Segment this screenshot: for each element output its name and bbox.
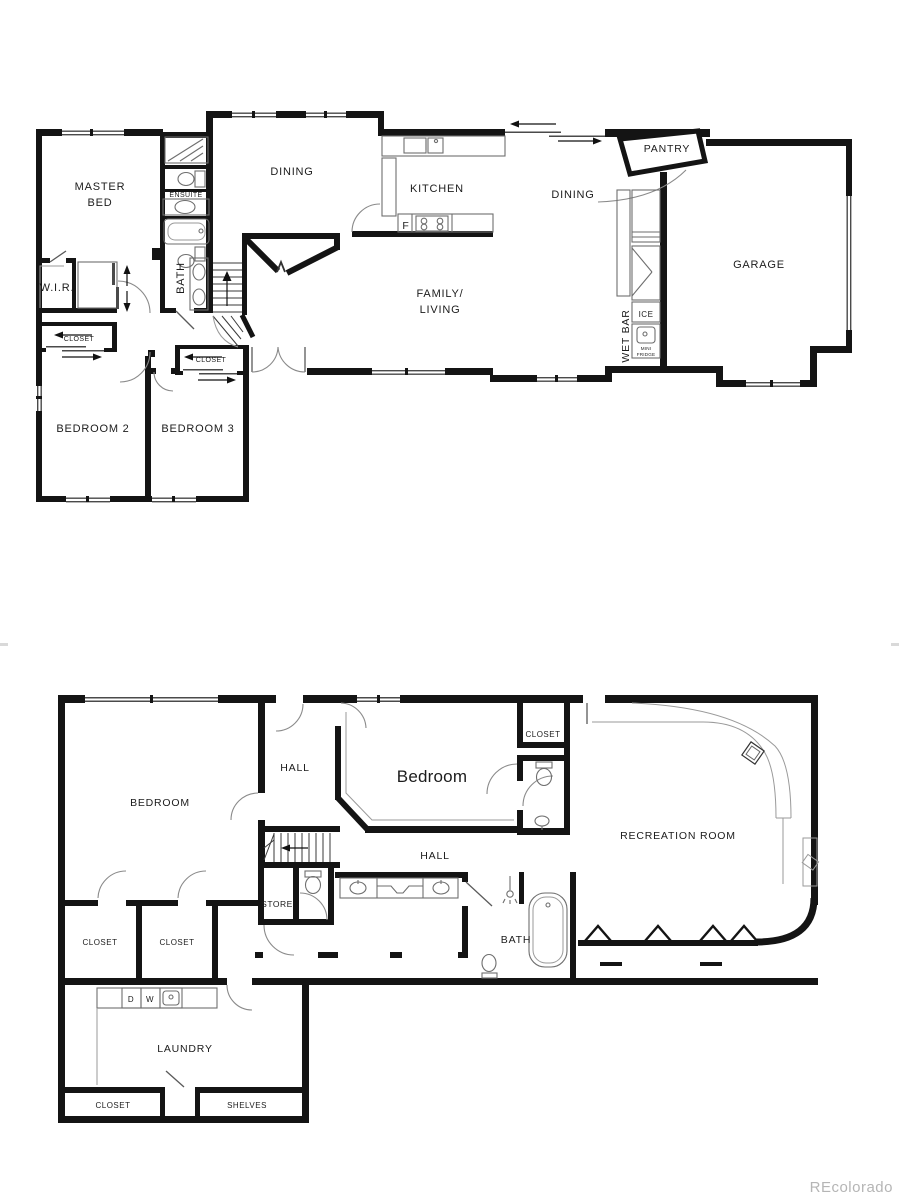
label-mini-fridge-1: MINI [641, 346, 652, 351]
room-label-family-2: LIVING [420, 304, 461, 316]
kitchen-sink-icon [382, 136, 505, 156]
room-label-bedroom-left: BEDROOM [130, 797, 190, 809]
room-label-closet2: CLOSET [159, 938, 194, 947]
room-label-wet-bar: WET BAR [620, 309, 632, 362]
shower-head-icon [503, 876, 517, 904]
toilet-icon [305, 871, 321, 894]
room-label-laundry: LAUNDRY [157, 1043, 213, 1055]
room-label-family-1: FAMILY/ [417, 288, 464, 300]
basin-icon [535, 816, 549, 830]
wardrobe-sliding [78, 262, 131, 312]
toilet-icon [482, 955, 497, 979]
front-door-chevron [277, 262, 285, 272]
closet2-door-arc [178, 871, 206, 898]
vanity-double-sink [340, 878, 458, 898]
stove-icon [398, 214, 493, 232]
room-label-dining-right: DINING [551, 189, 594, 201]
wir-door-leaf [50, 251, 66, 262]
room-label-kitchen: KITCHEN [410, 183, 464, 195]
watermark: REcolorado [810, 1179, 893, 1196]
room-label-closet1: CLOSET [82, 938, 117, 947]
pantry-door-arc [598, 170, 686, 202]
room-label-bath-lower: BATH [501, 934, 531, 946]
bedroom3-door-arc [154, 372, 173, 391]
laundry-closet-door-leaf [166, 1071, 184, 1087]
family-double-door-right [278, 347, 305, 372]
label-fridge-f: F [402, 220, 409, 232]
sink-icon [163, 199, 209, 215]
lower-fixtures [97, 703, 819, 1085]
bath-door-leaf [466, 882, 492, 906]
room-label-wir: W.I.R. [40, 282, 75, 294]
room-label-garage: GARAGE [733, 259, 785, 271]
lower-floor-plan: BEDROOM HALL Bedroom CLOSET RECREATION R… [58, 695, 819, 1123]
stairs-down-icon [264, 833, 330, 862]
laundry-door-arc [227, 985, 252, 1010]
rec-room-zigzag [585, 926, 757, 941]
shower-icon [165, 137, 208, 163]
upper-labels: MASTER BED ENSUITE BATH W.I.R. CLOSET CL… [40, 143, 785, 435]
room-label-hall-upper: HALL [280, 762, 309, 774]
kitchen-door-arc [352, 204, 380, 232]
bedroom-middle-door-arc [341, 703, 366, 728]
wc-door-arc [300, 893, 327, 920]
laundry-bench [97, 988, 217, 1085]
label-mini-fridge-2: FRIDGE [637, 352, 656, 357]
lower-walls [58, 695, 818, 1123]
room-label-master-1: MASTER [75, 181, 126, 193]
bathtub-icon [529, 893, 567, 967]
wc2-door-arc-a [487, 764, 517, 794]
room-label-closet-laundry: CLOSET [95, 1101, 130, 1110]
upper-fixtures [40, 136, 660, 384]
room-label-bedroom3: BEDROOM 3 [161, 423, 234, 435]
bath-door-leaf [176, 311, 194, 329]
room-label-closet-master: CLOSET [64, 336, 95, 343]
toilet-icon [178, 171, 205, 187]
upper-floor-plan: MASTER BED ENSUITE BATH W.I.R. CLOSET CL… [36, 111, 852, 502]
floor-plan-page: MASTER BED ENSUITE BATH W.I.R. CLOSET CL… [0, 0, 899, 1200]
vanity-double-sink [190, 258, 208, 310]
room-label-dining-left: DINING [270, 166, 313, 178]
room-label-bedroom2: BEDROOM 2 [56, 423, 129, 435]
closet1-door-arc [98, 871, 126, 898]
master-bed-door-arc [118, 281, 150, 313]
wet-bar-bench [617, 190, 660, 300]
lower-doors [98, 703, 587, 1087]
room-label-bedroom-middle: Bedroom [397, 767, 467, 786]
bedroom-inset-line [346, 712, 514, 820]
edge-mark-left [0, 643, 8, 646]
label-washer: W [146, 995, 154, 1004]
store-door-arc [264, 925, 294, 955]
room-label-recreation: RECREATION ROOM [620, 830, 736, 842]
toilet-icon [536, 762, 552, 786]
edge-mark-right [891, 643, 899, 646]
room-label-closet-hall: CLOSET [196, 357, 227, 364]
room-label-store: STORE [261, 899, 293, 909]
family-double-door-left [252, 347, 278, 372]
room-label-closet-bedroom: CLOSET [525, 730, 560, 739]
room-label-hall-lower: HALL [420, 850, 449, 862]
room-label-bath: BATH [175, 262, 187, 294]
lower-labels: BEDROOM HALL Bedroom CLOSET RECREATION R… [82, 730, 735, 1110]
room-label-ensuite: ENSUITE [169, 192, 202, 199]
label-ice: ICE [639, 310, 654, 319]
laundry-tub-icon [163, 991, 179, 1005]
floor-plan-image: MASTER BED ENSUITE BATH W.I.R. CLOSET CL… [0, 0, 899, 1200]
fireplace-icon [742, 742, 764, 764]
room-label-pantry: PANTRY [644, 143, 690, 155]
bathtub-icon [164, 219, 209, 244]
room-label-master-2: BED [87, 197, 112, 209]
bedroom-left-door-arc [231, 793, 258, 820]
hall-entry-door-arc [276, 704, 303, 731]
kitchen-bench [382, 158, 396, 216]
room-label-shelves: SHELVES [227, 1101, 267, 1110]
label-dryer: D [128, 995, 134, 1004]
wc2-door-arc-b [523, 776, 553, 806]
rec-room-curved-wall [592, 703, 791, 884]
